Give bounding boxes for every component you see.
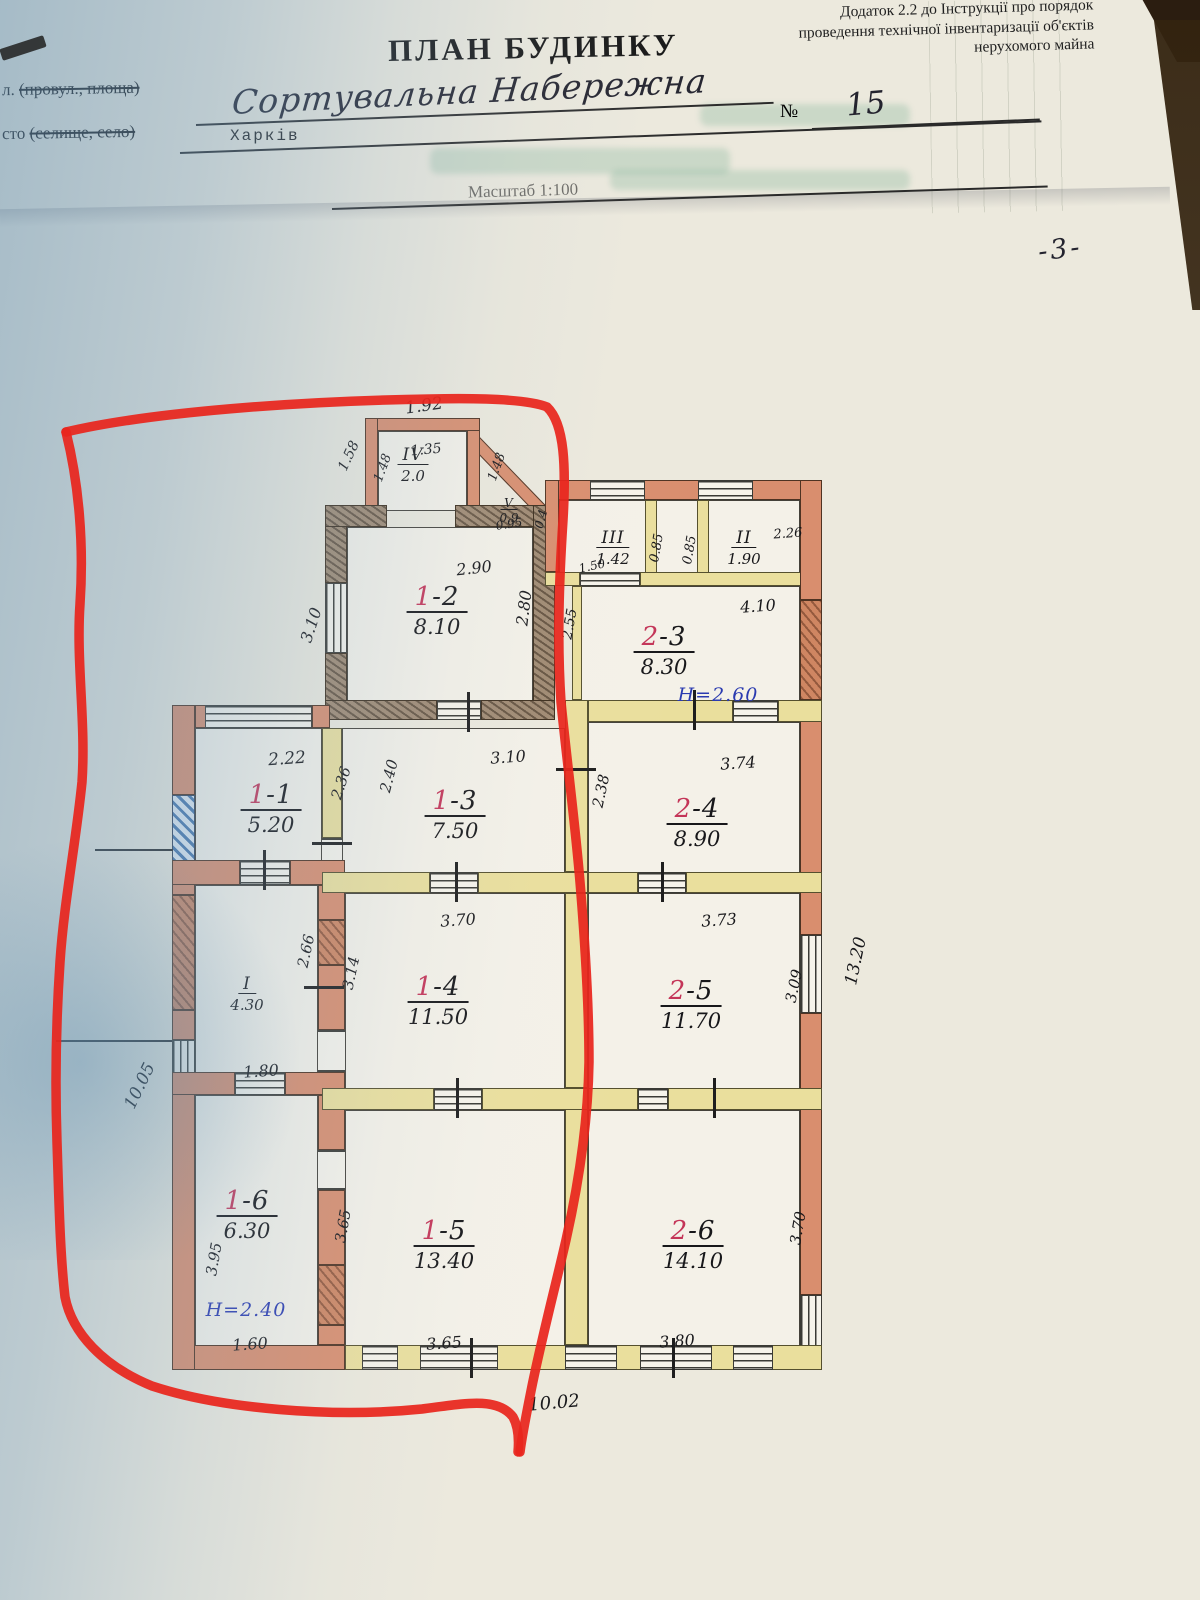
- dimension-label: 3.65: [426, 1332, 463, 1353]
- wall-segment: [325, 505, 387, 527]
- dimension-tick: [713, 1078, 716, 1118]
- wall-segment: [800, 600, 822, 700]
- room-label: 2-48.90: [667, 796, 728, 851]
- wall-segment: [362, 1345, 398, 1370]
- dimension-tick: [556, 768, 596, 771]
- wall-segment: [668, 1088, 822, 1110]
- room-area: 8.10: [407, 615, 468, 639]
- dimension-label: 1.35: [410, 441, 442, 460]
- room-id: 1-2: [407, 584, 468, 613]
- dimension-tick: [467, 692, 470, 732]
- room-id: 2-4: [667, 796, 728, 825]
- wall-segment: [325, 700, 437, 720]
- wall-segment: [638, 1088, 668, 1110]
- dimension-label: 1.58: [335, 438, 363, 473]
- wall-segment: [482, 1088, 588, 1110]
- wall-segment: [318, 1150, 345, 1190]
- wall-segment: [318, 920, 345, 965]
- dimension-label: 3.70: [440, 909, 477, 930]
- wall-segment: [686, 872, 822, 893]
- room-id: 2-6: [663, 1218, 724, 1247]
- height-label: Н=2.60: [678, 684, 759, 706]
- wall-segment: [318, 1325, 345, 1345]
- wall-segment: [588, 872, 638, 893]
- room-area: 6.30: [217, 1219, 278, 1243]
- dimension-tick: [455, 862, 458, 902]
- wall-segment: [172, 1072, 235, 1095]
- wall-segment: [640, 572, 822, 586]
- wall-segment: [698, 480, 753, 500]
- wall-segment: [565, 1088, 588, 1345]
- room-id: 1-1: [241, 782, 302, 811]
- wall-segment: [800, 700, 822, 935]
- room-label: 1-15.20: [241, 782, 302, 837]
- dimension-label: 1.60: [232, 1333, 269, 1354]
- dimension-label: 1.92: [404, 393, 444, 418]
- extension-line: [56, 1040, 172, 1042]
- wall-segment: [733, 1345, 773, 1370]
- room-id: 2-3: [634, 624, 695, 653]
- room-id: III: [596, 530, 629, 548]
- room-label: 2-511.70: [661, 978, 722, 1033]
- dimension-label: 2.90: [455, 557, 492, 580]
- room-label: 2-38.30: [634, 624, 695, 679]
- room-area: 14.10: [663, 1249, 724, 1273]
- room-label: 2-614.10: [663, 1218, 724, 1273]
- dimension-label: 4.10: [740, 595, 777, 616]
- wall-segment: [322, 872, 430, 893]
- room-area: 7.50: [425, 819, 486, 843]
- wall-segment: [325, 653, 347, 705]
- wall-segment: [172, 895, 195, 1010]
- room-area: 5.20: [241, 813, 302, 837]
- dimension-label: 10.05: [120, 1060, 159, 1113]
- room-area: 1.90: [727, 550, 760, 568]
- room-label: I4.30: [230, 974, 263, 1014]
- room-area: 11.70: [661, 1009, 722, 1033]
- scanned-document-page: Додаток 2.2 до Інструкції про порядок пр…: [0, 0, 1200, 1600]
- wall-segment: [565, 893, 588, 1088]
- dimension-label: 3.80: [659, 1330, 696, 1351]
- room-label: 1-513.40: [414, 1218, 475, 1273]
- wall-segment: [325, 583, 347, 653]
- wall-segment: [172, 860, 240, 885]
- wall-segment: [565, 700, 588, 872]
- room-id: 1-6: [217, 1188, 278, 1217]
- room-id: 1-5: [414, 1218, 475, 1247]
- room-id: I: [238, 976, 256, 994]
- floor-plan: IV2.0V0.9III1.42II1.901-28.102-38.301-15…: [0, 0, 1200, 1600]
- wall-segment: [467, 430, 480, 512]
- dimension-label: 3.73: [701, 909, 738, 930]
- wall-segment: [545, 572, 580, 586]
- room-label: II1.90: [727, 528, 760, 568]
- room-id: II: [731, 530, 756, 548]
- dimension-label: 3.10: [296, 605, 325, 645]
- wall-segment: [322, 1088, 434, 1110]
- dimension-label: 13.20: [841, 935, 871, 987]
- room-label: 1-28.10: [407, 584, 468, 639]
- wall-segment: [580, 572, 640, 586]
- wall-segment: [800, 1295, 822, 1350]
- dimension-tick: [312, 842, 352, 845]
- room-id: V: [500, 497, 518, 510]
- wall-segment: [590, 480, 645, 500]
- wall-segment: [172, 705, 195, 795]
- wall-segment: [437, 700, 481, 720]
- room-label: 1-37.50: [425, 788, 486, 843]
- wall-segment: [172, 1010, 195, 1040]
- room-id: 2-5: [661, 978, 722, 1007]
- room-label: 1-66.30: [217, 1188, 278, 1243]
- dimension-tick: [470, 1338, 473, 1378]
- wall-segment: [800, 480, 822, 600]
- room-area: 11.50: [408, 1005, 469, 1029]
- dimension-label: 10.02: [527, 1390, 580, 1415]
- room-area: 4.30: [230, 996, 263, 1014]
- wall-segment: [318, 1030, 345, 1072]
- dimension-label: 3.10: [490, 746, 527, 767]
- dimension-label: 3.74: [720, 752, 757, 773]
- wall-segment: [778, 700, 822, 722]
- wall-segment: [588, 1088, 638, 1110]
- wall-segment: [205, 705, 312, 728]
- dimension-label: 2.26: [773, 526, 803, 543]
- wall-segment: [478, 872, 588, 893]
- height-label: Н=2.40: [206, 1299, 287, 1321]
- dimension-label: 1.80: [243, 1060, 280, 1081]
- dimension-tick: [456, 1078, 459, 1118]
- wall-segment: [565, 1345, 617, 1370]
- room-area: 8.90: [667, 827, 728, 851]
- dimension-tick: [661, 862, 664, 902]
- wall-segment: [318, 1265, 345, 1325]
- extension-line: [95, 849, 173, 851]
- room-area: 8.30: [634, 655, 695, 679]
- room-id: 1-3: [425, 788, 486, 817]
- wall-segment: [545, 480, 822, 500]
- wall-segment: [365, 418, 480, 431]
- wall-segment: [481, 700, 555, 720]
- dimension-tick: [263, 850, 266, 890]
- room-area: 13.40: [414, 1249, 475, 1273]
- wall-segment: [572, 586, 582, 700]
- wall-segment: [800, 1013, 822, 1295]
- room-id: 1-4: [408, 974, 469, 1003]
- room-label: 1-411.50: [408, 974, 469, 1029]
- wall-segment: [545, 480, 559, 572]
- room-area: 2.0: [398, 467, 429, 485]
- wall-segment: [172, 795, 195, 862]
- dimension-label: 2.22: [267, 748, 306, 771]
- wall-segment: [312, 705, 330, 728]
- wall-segment: [172, 1078, 195, 1370]
- wall-segment: [430, 872, 478, 893]
